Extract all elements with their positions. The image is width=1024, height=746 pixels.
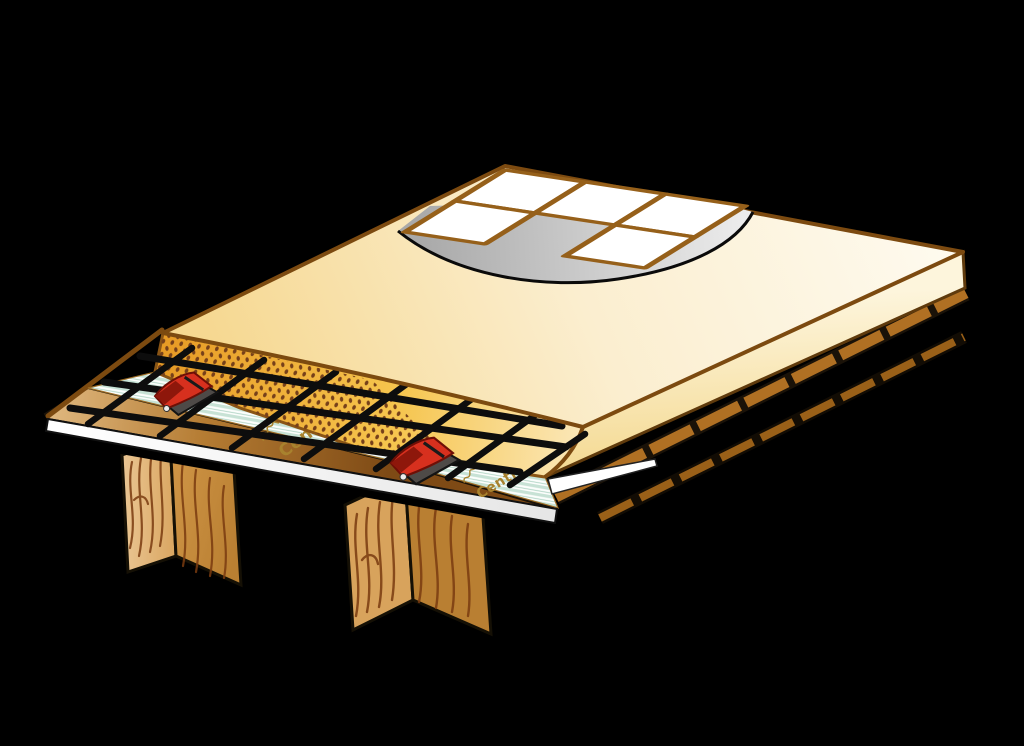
illustration-canvas: Centro Centro [0,0,1024,746]
floor-construction-diagram: Centro Centro [0,0,1024,746]
